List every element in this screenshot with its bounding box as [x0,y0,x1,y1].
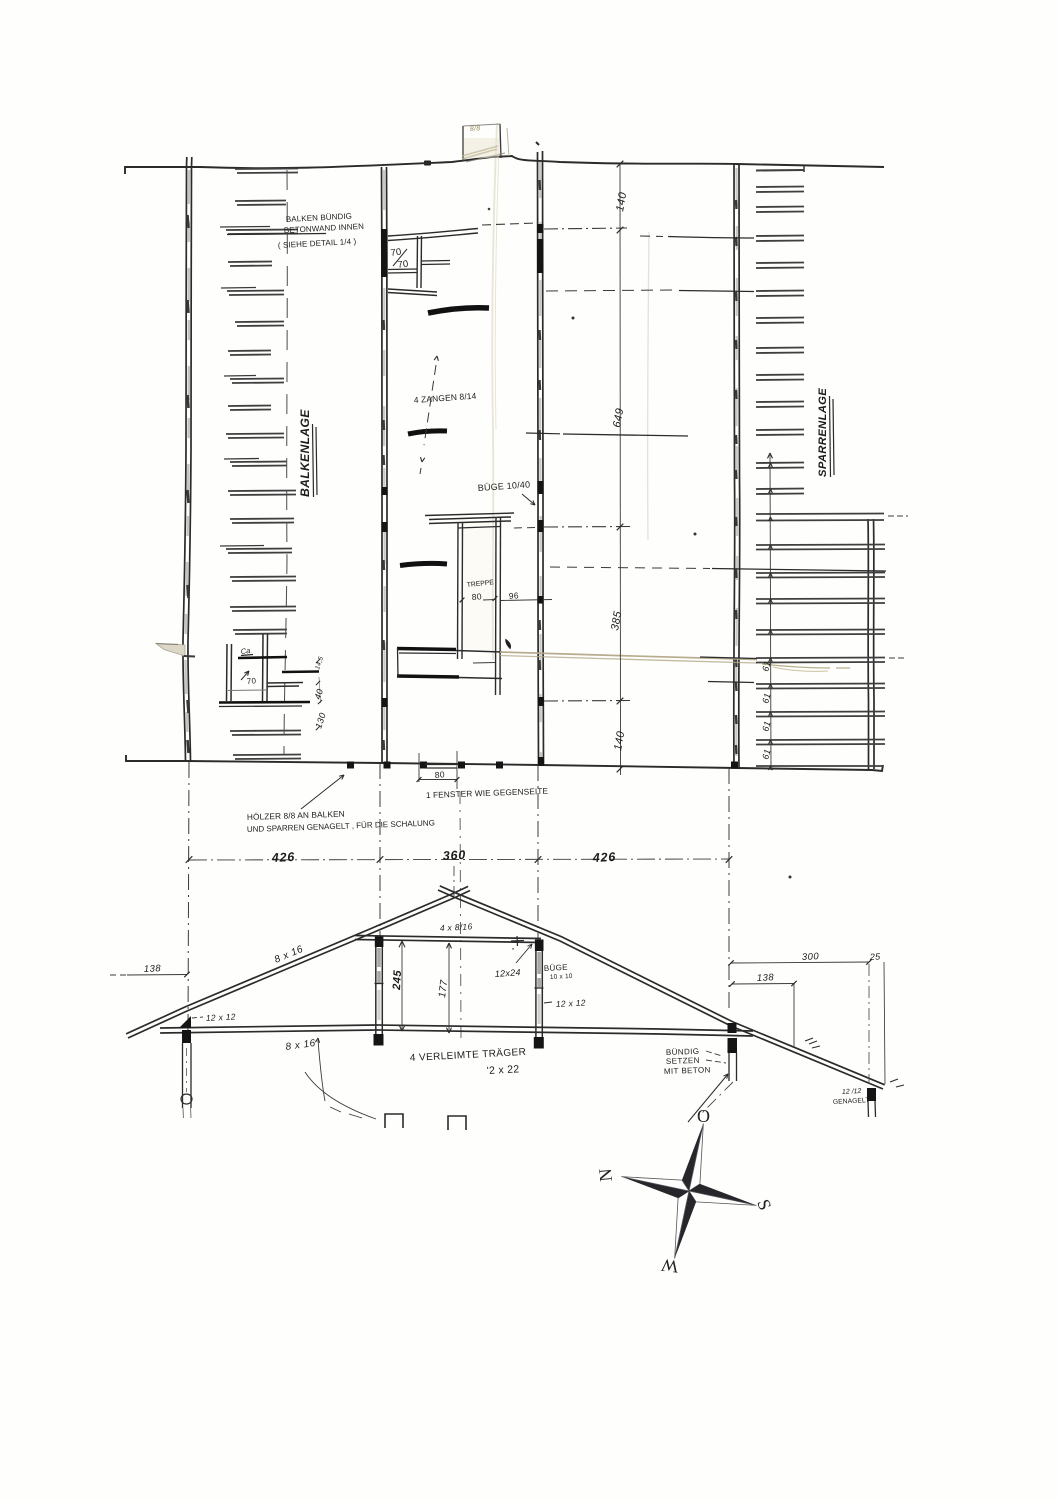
svg-text:BALKENLAGE: BALKENLAGE [298,409,312,497]
svg-text:8/8: 8/8 [470,125,481,133]
svg-text:SETZEN: SETZEN [666,1056,700,1066]
svg-text:12 x 12: 12 x 12 [556,997,586,1009]
svg-text:80: 80 [434,769,445,780]
svg-text:80: 80 [471,591,482,602]
svg-text:MIT BETON: MIT BETON [664,1065,711,1076]
svg-text:426: 426 [270,850,295,865]
svg-text:138: 138 [144,963,162,975]
svg-text:96: 96 [508,590,519,601]
svg-text:BÜGE: BÜGE [544,963,568,973]
svg-text:SPARRENLAGE: SPARRENLAGE [817,388,829,477]
svg-text:360: 360 [442,848,466,863]
svg-text:12 x 12: 12 x 12 [206,1011,236,1023]
svg-text:426: 426 [591,850,616,865]
svg-text:W: W [660,1255,679,1277]
svg-text:300: 300 [802,951,820,963]
svg-text:12x24: 12x24 [494,967,521,979]
svg-text:25: 25 [869,951,882,962]
svg-text:245: 245 [391,969,404,991]
svg-text:'2 x 22: '2 x 22 [487,1063,520,1077]
svg-text:138: 138 [757,972,775,984]
svg-text:70: 70 [397,259,409,271]
svg-text:177: 177 [437,979,450,998]
svg-text:4 x 8/16: 4 x 8/16 [440,921,473,933]
svg-text:12 /12: 12 /12 [842,1088,862,1096]
svg-text:70: 70 [246,676,256,686]
svg-text:N: N [595,1168,616,1183]
svg-text:10 x 10: 10 x 10 [550,973,573,981]
